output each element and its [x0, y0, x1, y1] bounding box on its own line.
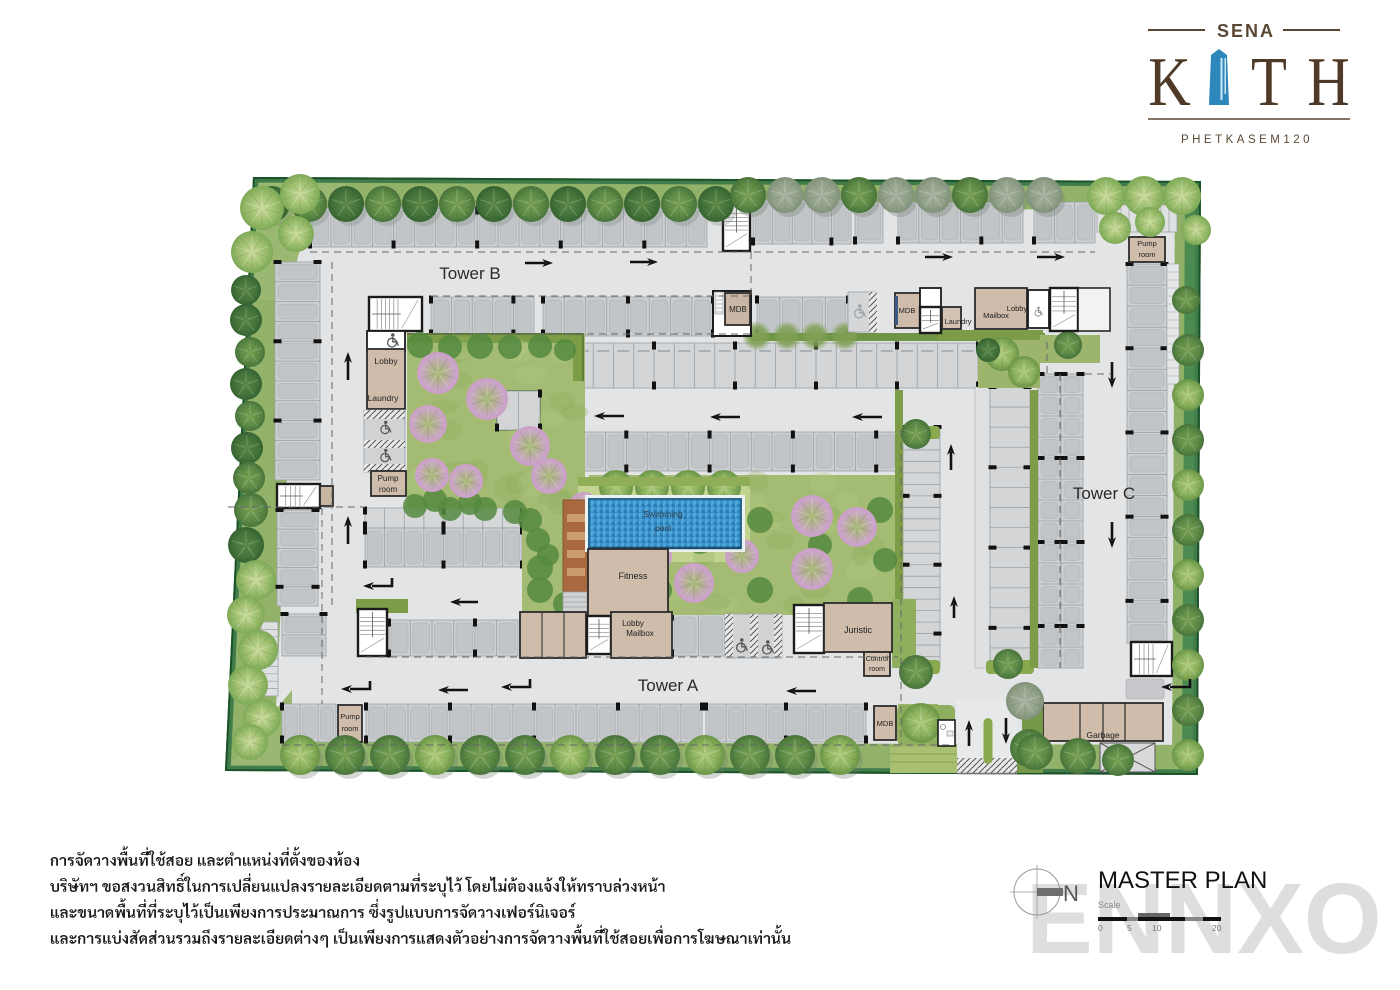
svg-text:Tower A: Tower A	[638, 676, 699, 695]
svg-text:room: room	[1138, 250, 1155, 259]
svg-text:Tower C: Tower C	[1073, 484, 1135, 503]
svg-text:Laundry: Laundry	[368, 393, 399, 403]
svg-text:Garbage: Garbage	[1086, 730, 1119, 740]
svg-text:MDB: MDB	[877, 719, 894, 728]
svg-text:Laundry: Laundry	[944, 317, 971, 326]
svg-text:Pump: Pump	[378, 474, 399, 483]
svg-text:MDB: MDB	[729, 305, 747, 314]
svg-text:0: 0	[1098, 923, 1103, 933]
svg-text:Tower B: Tower B	[439, 264, 500, 283]
svg-text:SENA: SENA	[1217, 21, 1275, 41]
svg-text:Lobby: Lobby	[374, 356, 398, 366]
svg-text:10: 10	[1152, 923, 1162, 933]
svg-text:N: N	[1063, 881, 1079, 906]
svg-text:room: room	[379, 485, 398, 494]
svg-text:20: 20	[1212, 923, 1222, 933]
svg-text:T: T	[1251, 42, 1287, 120]
svg-text:PHETKASEM120: PHETKASEM120	[1181, 134, 1313, 146]
svg-text:5: 5	[1127, 923, 1132, 933]
svg-text:Fitness: Fitness	[618, 571, 648, 581]
svg-text:pool: pool	[655, 523, 671, 533]
svg-text:Mailbox: Mailbox	[983, 311, 1009, 320]
svg-text:room: room	[869, 666, 885, 673]
svg-text:Pump: Pump	[340, 712, 360, 721]
svg-text:Juristic: Juristic	[844, 625, 873, 635]
svg-text:Swimming: Swimming	[643, 509, 682, 519]
svg-text:K: K	[1148, 42, 1190, 120]
svg-text:MASTER PLAN: MASTER PLAN	[1098, 867, 1267, 894]
svg-text:Lobby: Lobby	[1007, 304, 1028, 313]
svg-text:Scale: Scale	[1098, 900, 1121, 910]
svg-text:Mailbox: Mailbox	[626, 629, 654, 638]
svg-text:room: room	[341, 724, 358, 733]
svg-text:Pump: Pump	[1137, 239, 1157, 248]
svg-text:Lobby: Lobby	[622, 619, 644, 628]
svg-text:H: H	[1307, 42, 1349, 120]
svg-text:MDB: MDB	[899, 306, 916, 315]
